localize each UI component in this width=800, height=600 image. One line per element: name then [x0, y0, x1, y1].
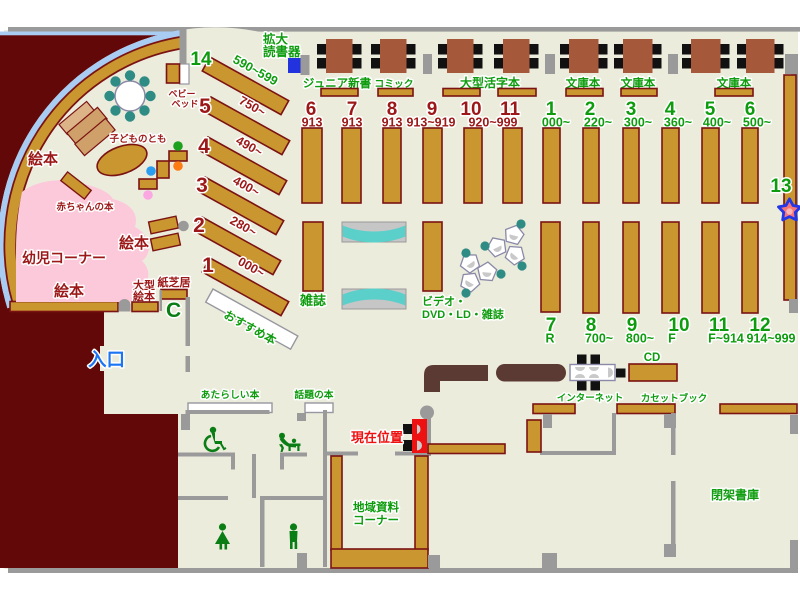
svg-text:R: R	[545, 332, 554, 346]
svg-text:読書器: 読書器	[263, 44, 301, 59]
svg-text:現在位置: 現在位置	[351, 430, 403, 445]
svg-text:地域資料: 地域資料	[353, 500, 399, 514]
svg-text:700~: 700~	[585, 332, 613, 346]
svg-text:ビデオ・: ビデオ・	[422, 294, 466, 308]
svg-text:コーナー: コーナー	[353, 514, 399, 527]
svg-text:14: 14	[190, 49, 212, 70]
svg-text:ベッド: ベッド	[171, 99, 198, 109]
svg-text:5: 5	[199, 95, 211, 118]
svg-text:カセットブック: カセットブック	[641, 393, 708, 405]
svg-text:4: 4	[198, 135, 210, 158]
svg-text:大型: 大型	[133, 278, 155, 292]
svg-text:閉架書庫: 閉架書庫	[711, 487, 759, 502]
svg-text:13: 13	[770, 176, 791, 197]
svg-text:話題の本: 話題の本	[294, 388, 333, 401]
svg-text:雑誌: 雑誌	[299, 293, 326, 308]
svg-text:914~999: 914~999	[746, 332, 795, 346]
svg-text:CD: CD	[644, 352, 661, 364]
svg-text:11: 11	[500, 99, 521, 120]
svg-text:赤ちゃんの本: 赤ちゃんの本	[56, 201, 114, 213]
svg-text:子どものとも: 子どものとも	[109, 133, 166, 145]
svg-text:紙芝居: 紙芝居	[158, 275, 191, 289]
svg-text:3: 3	[196, 174, 208, 197]
svg-text:絵本: 絵本	[54, 282, 84, 300]
svg-text:C: C	[166, 299, 181, 322]
svg-text:幼児コーナー: 幼児コーナー	[22, 250, 106, 266]
svg-text:F~914: F~914	[708, 332, 744, 346]
svg-text:絵本: 絵本	[119, 234, 149, 252]
svg-text:あたらしい本: あたらしい本	[201, 388, 260, 401]
svg-text:DVD・LD・雑誌: DVD・LD・雑誌	[422, 307, 504, 321]
svg-text:800~: 800~	[626, 332, 654, 346]
svg-text:インターネット: インターネット	[557, 392, 624, 404]
svg-text:絵本: 絵本	[28, 150, 58, 168]
svg-text:ベビー: ベビー	[168, 88, 195, 99]
svg-text:1: 1	[202, 254, 214, 277]
svg-text:2: 2	[193, 214, 205, 237]
svg-text:F: F	[668, 332, 676, 346]
svg-text:絵本: 絵本	[133, 289, 155, 303]
svg-text:入口: 入口	[88, 349, 125, 370]
